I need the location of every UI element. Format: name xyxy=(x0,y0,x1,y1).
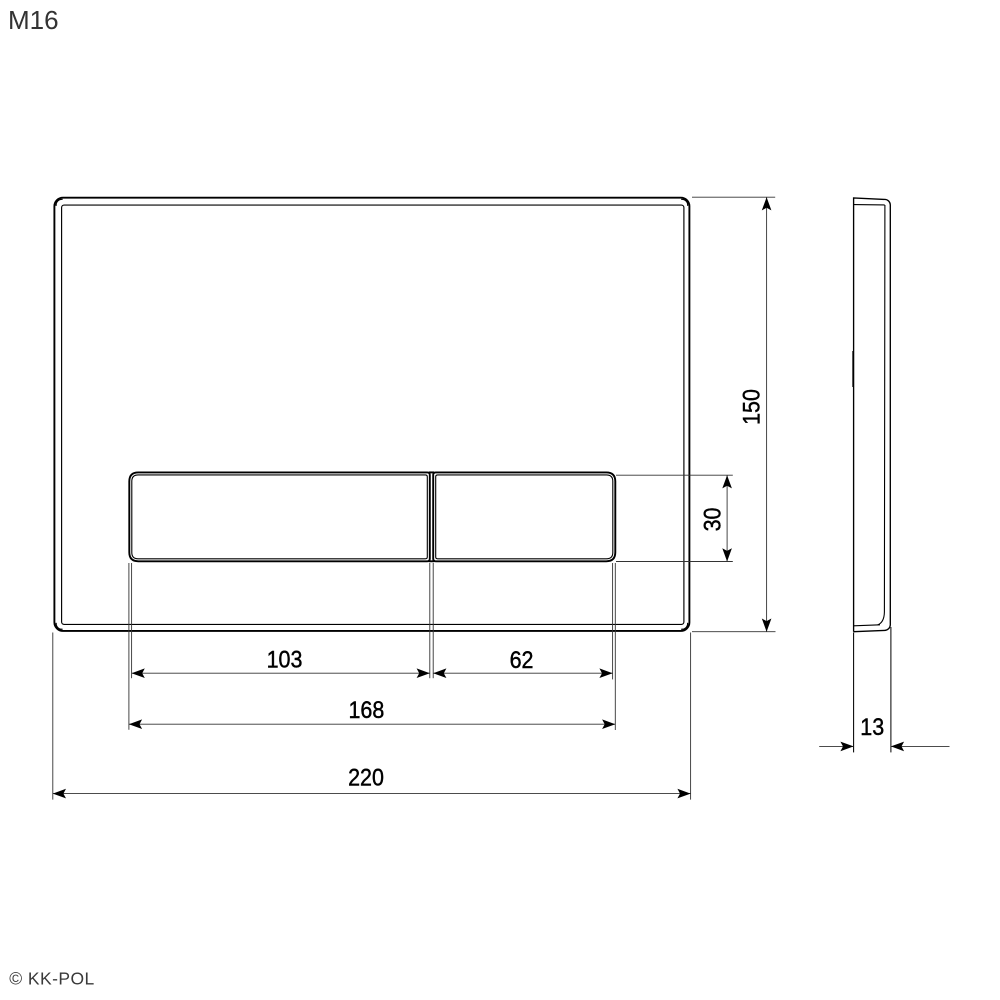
svg-text:62: 62 xyxy=(510,646,534,673)
svg-text:© KK-POL: © KK-POL xyxy=(9,969,95,989)
svg-text:103: 103 xyxy=(267,645,303,672)
svg-text:220: 220 xyxy=(348,763,384,790)
svg-text:M16: M16 xyxy=(8,5,59,35)
svg-text:30: 30 xyxy=(698,508,725,532)
svg-text:13: 13 xyxy=(860,713,884,740)
svg-text:168: 168 xyxy=(348,696,384,723)
svg-text:150: 150 xyxy=(737,389,764,425)
